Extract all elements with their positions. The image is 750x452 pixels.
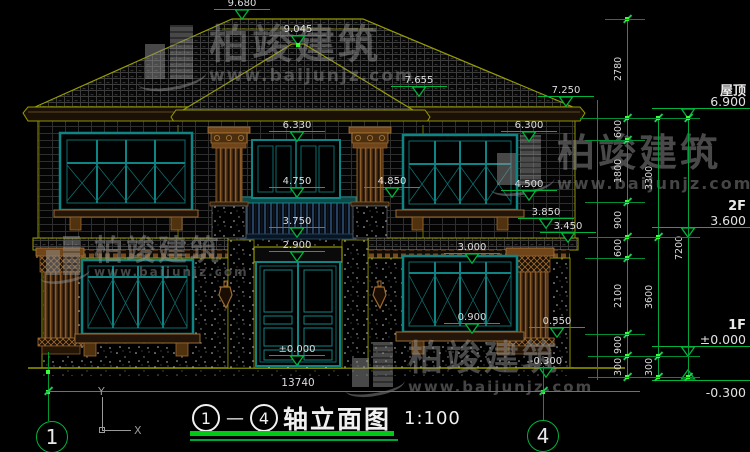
elevation-mark-label: 4.750 — [263, 176, 331, 187]
level-line — [652, 380, 750, 381]
ucs-y-label: Y — [98, 385, 105, 398]
extension-line — [588, 356, 700, 357]
annotation-layer: 9.680 9.045 7.655 7.250 6.330 6.300 4.85… — [0, 0, 750, 452]
extension-line — [580, 118, 700, 119]
elevation-mark-triangle — [560, 232, 576, 243]
grip-dot — [46, 370, 49, 373]
level-name: 2F — [686, 199, 746, 214]
dim-chain-line — [688, 118, 689, 377]
dim-chain-value: 3600 — [644, 267, 656, 327]
elevation-mark-label: 7.655 — [385, 75, 453, 86]
elevation-mark-triangle — [384, 187, 400, 198]
elevation-mark-triangle — [549, 327, 565, 338]
elevation-mark-label: 3.750 — [263, 216, 331, 227]
elevation-mark-triangle — [411, 86, 427, 97]
overall-width-dimension: 13740 — [268, 378, 328, 389]
elevation-mark-label: 7.250 — [532, 85, 600, 96]
extension-line — [585, 258, 645, 259]
elevation-mark-triangle — [538, 367, 554, 378]
dim-chain-value: 2780 — [613, 39, 625, 99]
elevation-mark-triangle — [289, 187, 305, 198]
elevation-mark-label: 3.450 — [534, 221, 602, 232]
elevation-mark-triangle — [289, 355, 305, 366]
extension-line — [585, 202, 645, 203]
level-value: -0.300 — [676, 385, 746, 400]
elevation-mark-triangle — [289, 251, 305, 262]
elevation-mark-label: 2.900 — [263, 240, 331, 251]
elevation-mark-triangle — [464, 253, 480, 264]
axis-range-dash: — — [226, 408, 244, 429]
drawing-scale: 1:100 — [404, 408, 461, 429]
title-underline-thick — [190, 431, 394, 436]
title-underline-thin — [190, 439, 398, 441]
axis-end-bubble: 4 — [250, 404, 278, 432]
axis-bubble: 1 — [36, 421, 68, 452]
elevation-mark-label: 6.300 — [495, 120, 563, 131]
dim-chain-value: 3300 — [644, 148, 656, 208]
level-value: ±0.000 — [676, 332, 746, 347]
elevation-mark-triangle — [521, 190, 537, 201]
elevation-mark-label: 4.500 — [495, 179, 563, 190]
axis-start-bubble: 1 — [192, 404, 220, 432]
elevation-mark-label: 6.330 — [263, 120, 331, 131]
dim-chain-line — [627, 19, 628, 377]
axis-bubble: 4 — [527, 420, 559, 452]
elevation-mark-triangle — [289, 131, 305, 142]
grip-dot — [296, 43, 299, 46]
elevation-mark-label: 4.850 — [358, 176, 426, 187]
dim-chain-line — [658, 118, 659, 377]
extension-line — [588, 377, 700, 378]
elevation-drawing-canvas: 柏竣建筑 www.baijunjz.com 柏竣建筑 www.baijunjz.… — [0, 0, 750, 452]
elevation-mark-triangle — [558, 96, 574, 107]
elevation-mark-label: -0.300 — [512, 356, 580, 367]
dim-chain-value: 7200 — [674, 218, 686, 278]
elevation-mark-label: ±0.000 — [263, 344, 331, 355]
extension-line — [588, 237, 700, 238]
extension-stem — [597, 100, 598, 380]
ucs-x-label: X — [134, 424, 142, 437]
level-value: 3.600 — [676, 213, 746, 228]
elevation-mark-label: 0.550 — [523, 316, 591, 327]
level-name: 1F — [686, 318, 746, 333]
elevation-mark-triangle — [521, 131, 537, 142]
overall-dim-line — [46, 391, 640, 392]
elevation-mark-label: 9.045 — [264, 24, 332, 35]
extension-line — [585, 140, 645, 141]
extension-line — [605, 19, 645, 20]
level-value: 6.900 — [676, 94, 746, 109]
extension-stem — [48, 352, 49, 421]
elevation-mark-label: 3.000 — [438, 242, 506, 253]
extension-line — [585, 334, 645, 335]
dim-chain-value: 300 — [613, 337, 625, 397]
elevation-mark-triangle — [289, 227, 305, 238]
elevation-mark-triangle — [234, 9, 250, 20]
dim-chain-value: 300 — [644, 337, 656, 397]
elevation-mark-triangle — [464, 323, 480, 334]
elevation-mark-label: 9.680 — [208, 0, 276, 9]
elevation-mark-label: 0.900 — [438, 312, 506, 323]
elevation-mark-label: 3.850 — [512, 207, 580, 218]
